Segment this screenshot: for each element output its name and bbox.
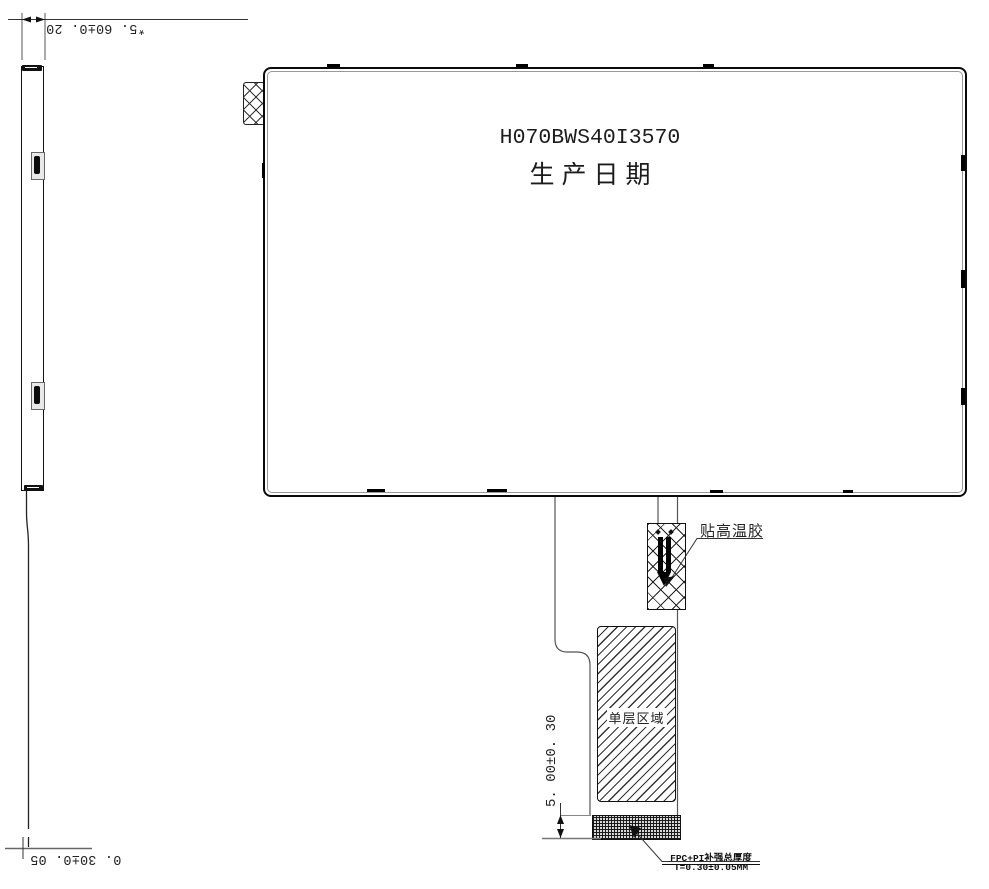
stiffener-dimension-lines (542, 803, 601, 839)
leader-and-dimension-lines (0, 0, 989, 889)
tape-label-leader-line (669, 539, 763, 583)
side-top-dimension-arrows (22, 17, 45, 23)
lcd-module-technical-drawing: *5. 60±0. 20 0. 30±0. 05 H070BWS40I3570 … (0, 0, 989, 889)
stiffener-note-leader-line (633, 829, 760, 862)
